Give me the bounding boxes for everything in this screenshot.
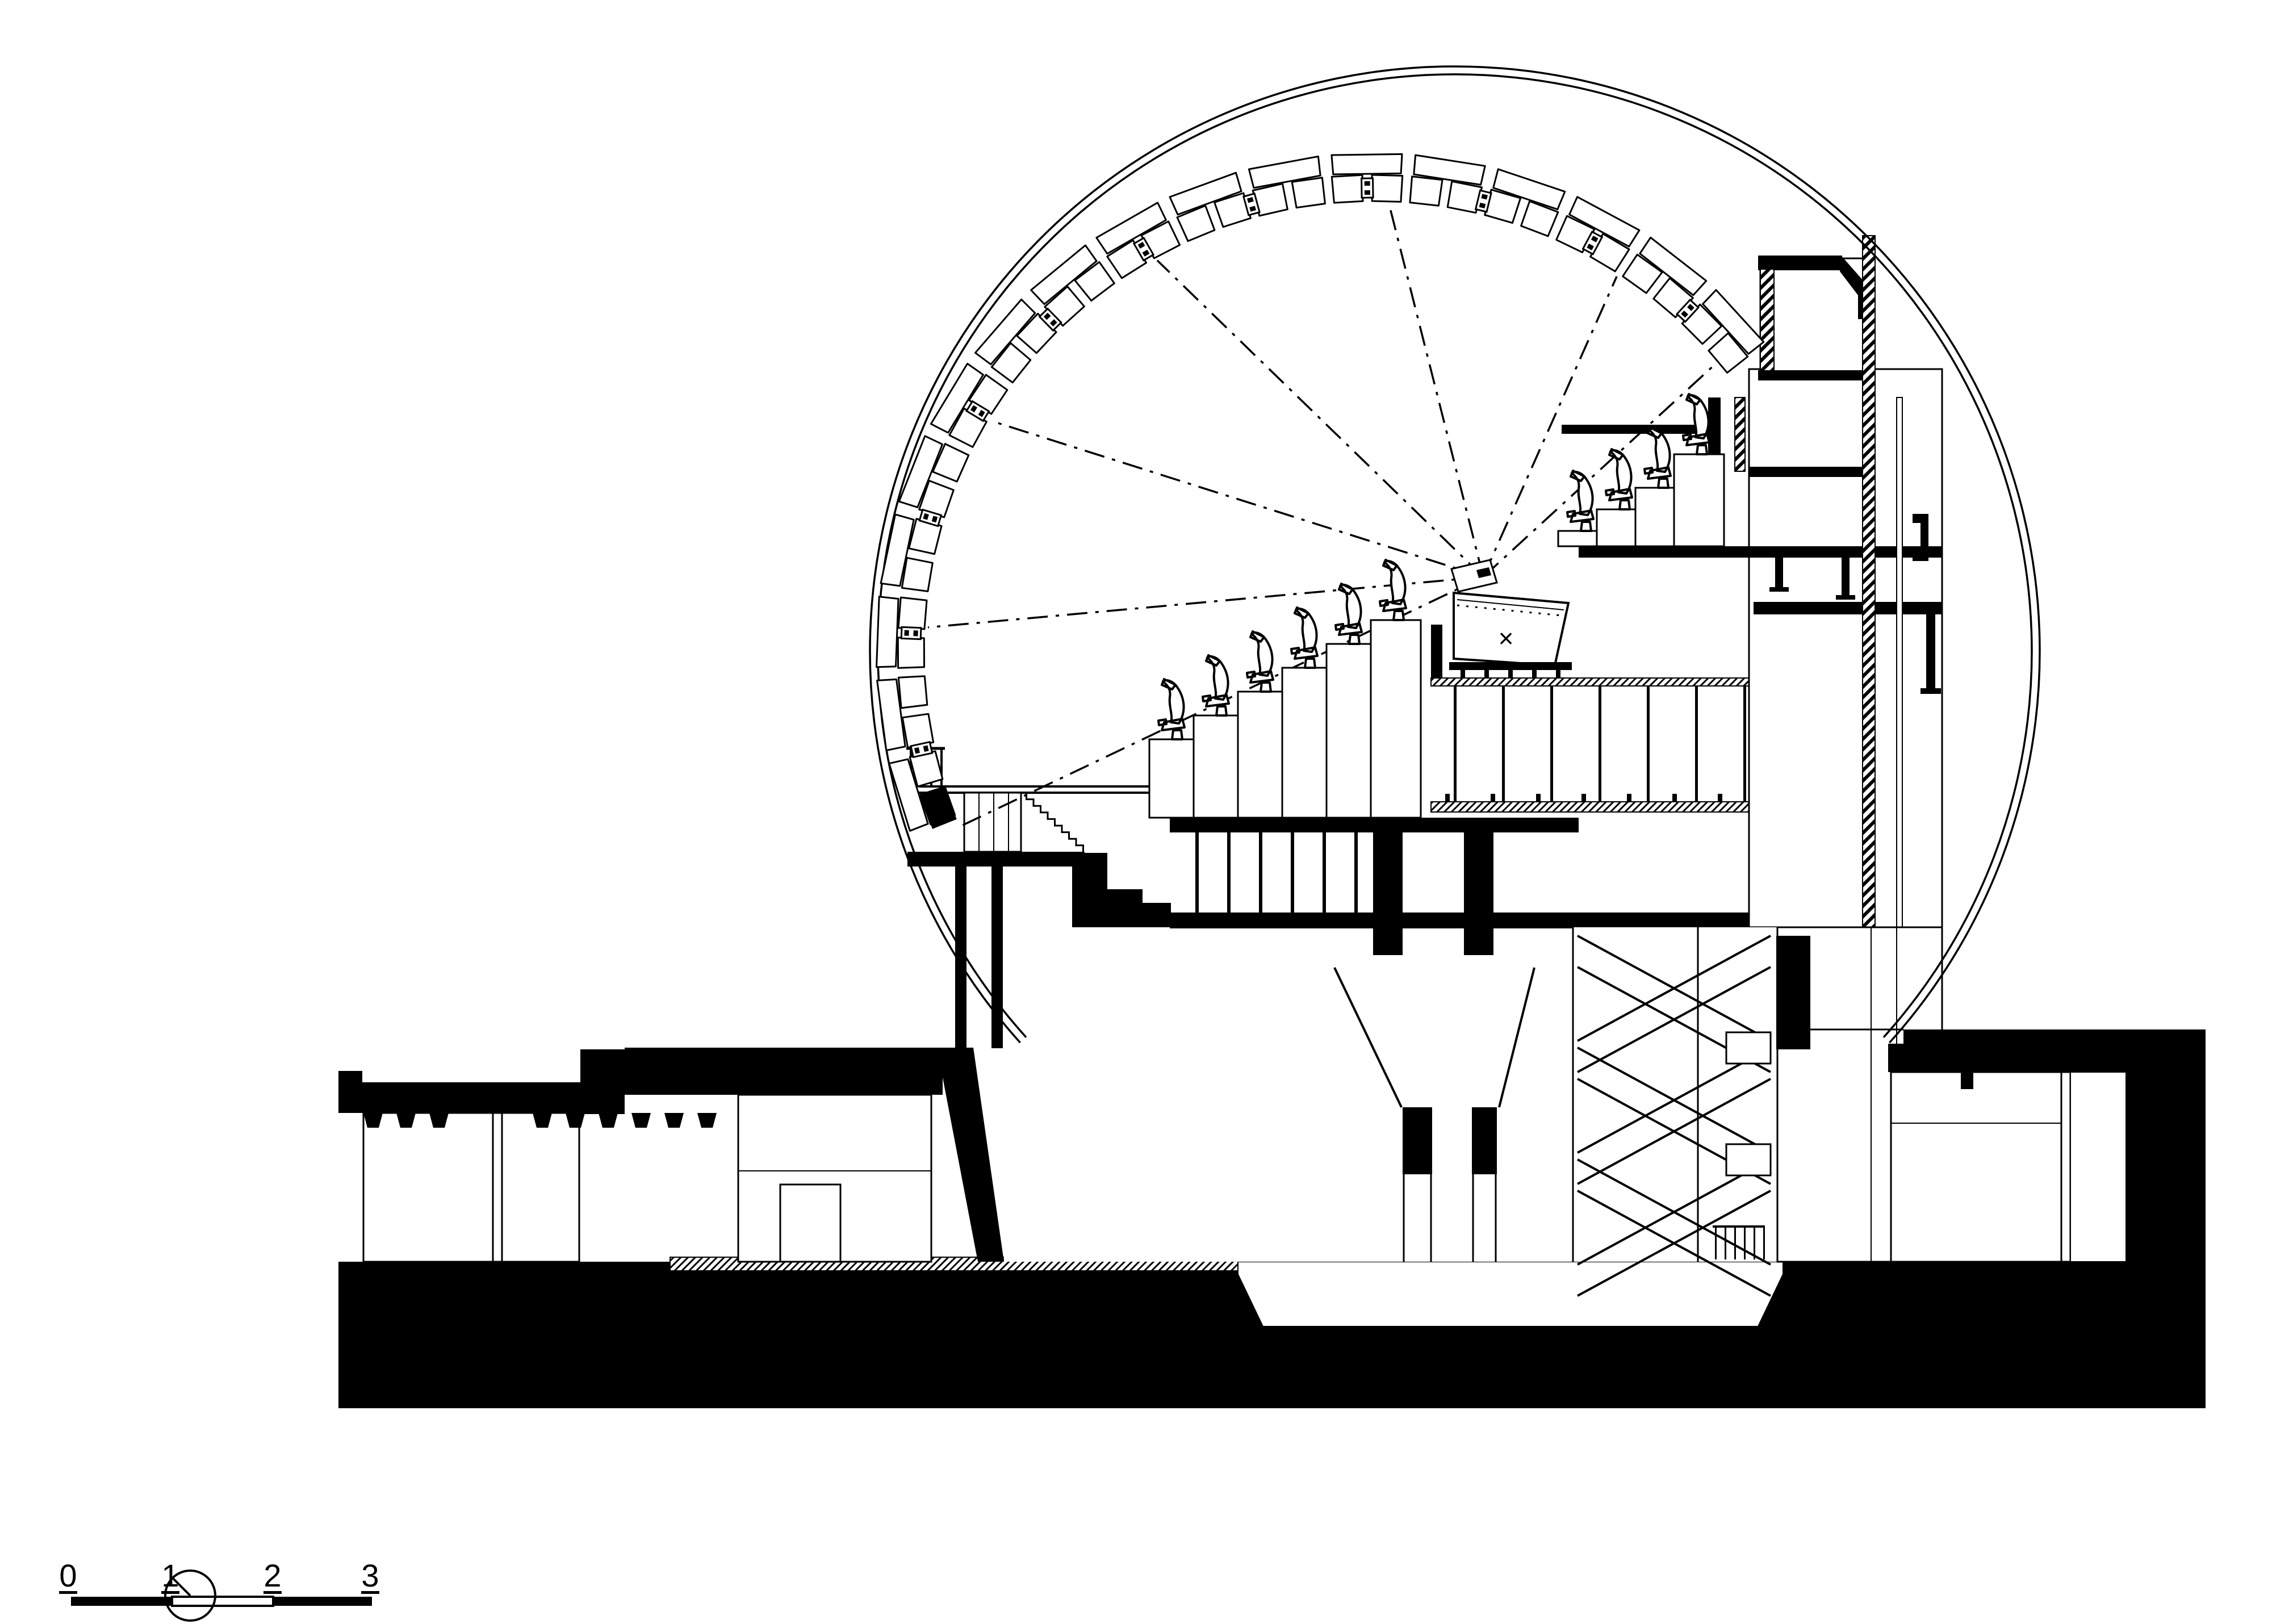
screen-panel xyxy=(902,558,932,591)
boothPedestals-post xyxy=(1556,670,1560,678)
mezz-wall xyxy=(1431,625,1442,686)
pit-column xyxy=(1352,1265,1354,1324)
boothPedestals-post xyxy=(1532,670,1537,678)
ped1412-post xyxy=(1445,794,1450,802)
recliner-seat-icon xyxy=(1683,394,1709,454)
door-opening xyxy=(780,1184,840,1262)
recliner-seat-icon xyxy=(1336,584,1362,644)
ped1412-post xyxy=(1627,794,1631,802)
stair-landing-1 xyxy=(1726,1032,1771,1064)
screen-panel xyxy=(1372,175,1403,202)
right-wing-rooms xyxy=(1891,1072,2061,1262)
entryRail-post xyxy=(940,748,943,786)
booth-platform xyxy=(1449,662,1572,670)
pit-column xyxy=(1647,1265,1650,1324)
entry-step-profile xyxy=(1019,793,1083,852)
pit-column xyxy=(1374,1265,1377,1324)
scale-tick-3 xyxy=(361,1591,379,1594)
scale-bar: 0 1 2 3 xyxy=(59,1558,379,1606)
entry-slab xyxy=(907,852,1085,867)
t-column-3 xyxy=(1926,614,1935,692)
boothPedestals-post xyxy=(1484,670,1489,678)
t-column-2 xyxy=(1842,558,1850,598)
floor-penthouse xyxy=(1758,370,1875,380)
recliner-seat-icon xyxy=(1203,655,1229,715)
sight-line xyxy=(1157,261,1483,577)
right-corridor xyxy=(2070,1072,2126,1262)
top-seat-band xyxy=(1562,425,1710,434)
roof-step xyxy=(1888,1044,1905,1072)
stair-core-wall xyxy=(1776,936,1810,1049)
mezzanine-post xyxy=(1550,686,1553,802)
pit-columns xyxy=(1329,1265,1650,1324)
pit-column xyxy=(1465,1265,1468,1324)
scale-tick-2 xyxy=(263,1591,282,1594)
lobby-post xyxy=(1195,832,1199,913)
roof-joist-stub xyxy=(697,1113,717,1128)
shell-plate xyxy=(1332,154,1402,174)
auditorium-seating xyxy=(1149,394,1724,818)
pier-1 xyxy=(1373,832,1403,955)
stair-landing-2 xyxy=(1726,1144,1771,1175)
left-annex-room xyxy=(363,1113,579,1262)
seat-tier-box xyxy=(1327,644,1376,818)
lower-hall xyxy=(1004,927,1573,1262)
shell-plate xyxy=(877,597,899,667)
architectural-section-canvas: × 0 1 2 3 xyxy=(0,0,2272,1624)
stairRail-post xyxy=(1763,1228,1765,1259)
scale-label-2: 2 xyxy=(263,1558,281,1593)
pit-column xyxy=(1488,1265,1491,1324)
scale-label-3: 3 xyxy=(361,1558,379,1593)
scale-seg-black-1 xyxy=(71,1597,172,1606)
t-column-1-foot xyxy=(1769,587,1789,592)
roof-joist-stub xyxy=(631,1113,651,1128)
entry-deck xyxy=(919,786,1171,793)
speaker-box-icon xyxy=(901,627,921,639)
mezzanine-post xyxy=(1743,686,1746,802)
seat-tier-box xyxy=(1194,715,1244,818)
lobby-post xyxy=(1259,832,1262,913)
pit-column xyxy=(1442,1265,1445,1324)
recliner-seat-icon xyxy=(1567,471,1593,531)
sight-line xyxy=(1389,205,1483,577)
pit-column xyxy=(1601,1265,1604,1324)
screen-panel xyxy=(1410,177,1442,206)
pit-column xyxy=(1397,1265,1400,1324)
mezzanine-post xyxy=(1454,686,1457,802)
roof-joist-stub xyxy=(599,1113,618,1128)
entry-stair-steps xyxy=(1019,793,1083,852)
left-annex-column xyxy=(493,1113,502,1262)
hall-column-2 xyxy=(1472,1107,1497,1174)
booth-center-mark: × xyxy=(1499,623,1514,653)
stairRail-post xyxy=(1754,1228,1755,1259)
lobby-post xyxy=(1323,832,1326,913)
pit-column xyxy=(1624,1265,1627,1324)
stairRail-post xyxy=(1725,1228,1726,1259)
left-annex-roof xyxy=(338,1082,584,1113)
mezzanine-post xyxy=(1599,686,1601,802)
screen-panel xyxy=(898,676,927,708)
recliner-seat-icon xyxy=(1158,679,1185,739)
inclined-strut xyxy=(937,1048,1004,1262)
hall-column-1 xyxy=(1403,1107,1432,1174)
mid-annex xyxy=(625,1048,1004,1262)
t-column-3-foot xyxy=(1920,688,1941,694)
screen-panel xyxy=(1332,175,1363,203)
joist-stub xyxy=(1961,1072,1973,1089)
stepped-underbelly xyxy=(1072,853,1171,927)
left-parapet xyxy=(338,1071,362,1113)
seat-tier-box xyxy=(1674,454,1724,546)
right-wing-wall xyxy=(2061,1072,2070,1262)
scale-tick-0 xyxy=(59,1591,77,1594)
penthouse-wall xyxy=(1760,269,1774,379)
seat-tier-box xyxy=(1371,620,1421,818)
drawing-page: × 0 1 2 3 xyxy=(0,0,2272,1624)
lobby-post xyxy=(1291,832,1294,913)
ped1412-post xyxy=(1491,794,1495,802)
floor-b xyxy=(1579,546,1942,558)
scale-seg-black-2 xyxy=(273,1597,372,1606)
mezzanine-post xyxy=(1695,686,1698,802)
recliner-seat-icon xyxy=(1291,608,1317,668)
t-column-1 xyxy=(1775,558,1783,591)
recliner-seat-icon xyxy=(1380,560,1406,620)
ped1412-post xyxy=(1581,794,1586,802)
screen-panel xyxy=(898,597,927,629)
pit-column xyxy=(1511,1265,1513,1324)
ped1412-post xyxy=(1672,794,1677,802)
floor-a xyxy=(1749,467,1872,477)
wall-v2 xyxy=(1735,397,1745,471)
speaker-box-icon xyxy=(1362,178,1373,198)
ped1412-post xyxy=(1718,794,1722,802)
scissor-stair xyxy=(1573,927,1810,1296)
screen-panel xyxy=(1292,178,1325,208)
mezzanine-slab-1200 xyxy=(1431,678,1783,686)
seat-tier-box xyxy=(1149,739,1199,818)
scale-tick-1 xyxy=(161,1591,179,1594)
ground-poche xyxy=(338,1257,2206,1408)
right-mass xyxy=(2126,1029,2206,1408)
roof-joist-stub xyxy=(664,1113,684,1128)
mezzanine-post xyxy=(1502,686,1505,802)
stairRail-post xyxy=(1734,1228,1736,1259)
boothPedestals-post xyxy=(1461,670,1465,678)
scale-seg-white xyxy=(172,1597,273,1606)
ped1412-post xyxy=(1536,794,1541,802)
lobby-post xyxy=(1354,832,1358,913)
boothPedestals-post xyxy=(1508,670,1513,678)
sight-line xyxy=(991,421,1483,577)
pit-column xyxy=(1533,1265,1536,1324)
projector-head xyxy=(1451,560,1497,592)
projection-booth: × xyxy=(1449,560,1572,670)
seat-tier-box xyxy=(1238,692,1288,818)
recliner-seat-icon xyxy=(1606,449,1632,509)
penthouse-roof xyxy=(1758,256,1842,270)
stairRail-post xyxy=(1715,1228,1717,1259)
pit-column xyxy=(1420,1265,1422,1324)
recliner-seat-icon xyxy=(1645,428,1671,488)
lobby-post xyxy=(1227,832,1231,913)
mezzanine-post xyxy=(1647,686,1650,802)
scale-label-0: 0 xyxy=(59,1558,77,1593)
seat-tier-box xyxy=(1282,668,1332,818)
lobby-slab xyxy=(1170,818,1579,832)
roof-step-block xyxy=(580,1049,625,1114)
pier-2 xyxy=(1464,832,1493,955)
tower-body xyxy=(1749,369,1942,927)
pit-column xyxy=(1329,1265,1332,1324)
screen-panel xyxy=(898,638,924,668)
pit-column xyxy=(1556,1265,1559,1324)
floor-c xyxy=(1754,602,1942,614)
stairRail-post xyxy=(1744,1228,1746,1259)
mid-annex-roof xyxy=(625,1048,943,1095)
t-column-2-foot xyxy=(1836,595,1855,600)
